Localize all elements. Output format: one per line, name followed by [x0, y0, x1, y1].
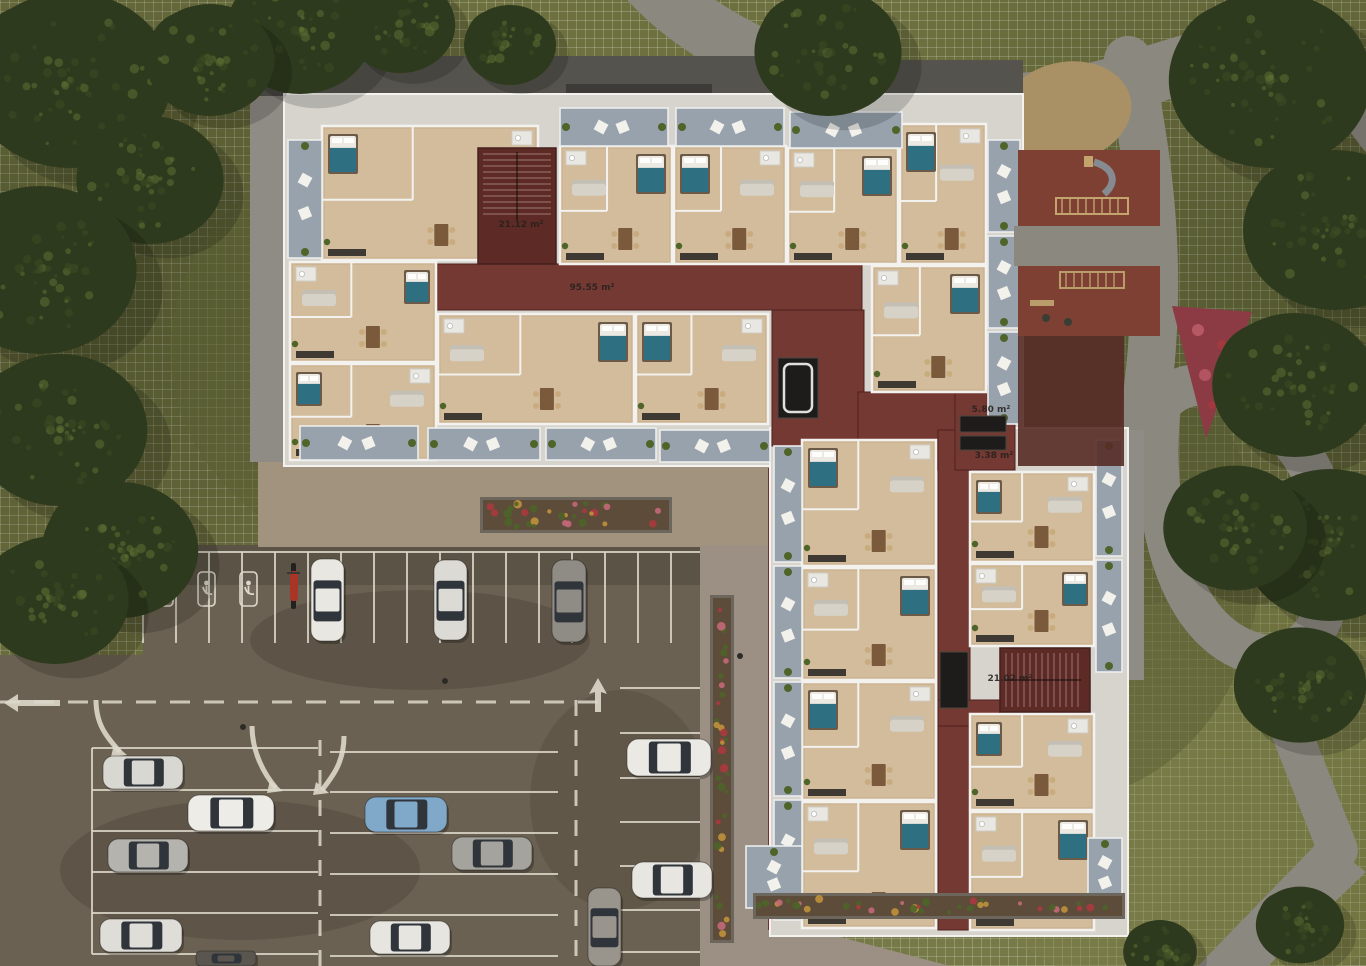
balcony [288, 140, 322, 258]
plant [804, 779, 810, 785]
balcony-plant [658, 123, 666, 131]
car [370, 921, 452, 957]
balcony [300, 426, 418, 460]
flower-strip [753, 893, 1125, 919]
balcony-plant [784, 552, 792, 560]
elevator-shaft [960, 416, 1006, 432]
bed [598, 322, 628, 362]
elevator-shaft [940, 652, 968, 708]
sofa [884, 302, 918, 318]
sofa [940, 165, 974, 181]
apartment-unit[interactable] [802, 440, 936, 566]
bed [1062, 572, 1088, 606]
bed [1058, 820, 1088, 860]
elevator-shaft [960, 436, 1006, 450]
bathroom [960, 129, 980, 143]
apartment-unit[interactable] [970, 564, 1094, 646]
balcony-plant [784, 448, 792, 456]
spring-rider [1042, 314, 1050, 322]
car [627, 739, 713, 779]
plant [902, 243, 908, 249]
plant [972, 789, 978, 795]
balcony-plant [301, 248, 309, 256]
balcony-plant [1105, 546, 1113, 554]
balcony-plant [302, 439, 310, 447]
balcony-plant [784, 802, 792, 810]
apartment-unit[interactable] [970, 714, 1094, 810]
balcony [988, 140, 1020, 232]
bathroom [444, 319, 464, 333]
bathroom [976, 569, 996, 583]
car [365, 797, 449, 835]
bed [680, 154, 710, 194]
apartment-unit[interactable] [802, 682, 936, 800]
car [188, 795, 276, 834]
bathroom [794, 153, 814, 167]
kitchen-counter [794, 253, 832, 260]
bollard [737, 653, 743, 659]
bed [862, 156, 892, 196]
balcony [774, 566, 802, 678]
balcony-plant [430, 440, 438, 448]
plant [292, 341, 298, 347]
apartment-unit[interactable] [636, 314, 768, 424]
plant [676, 243, 682, 249]
apartment-unit[interactable] [802, 568, 936, 680]
bathroom [910, 445, 930, 459]
balcony [774, 682, 802, 796]
balcony [774, 446, 802, 562]
kitchen-counter [808, 789, 846, 796]
bed [808, 690, 838, 730]
car [100, 919, 184, 955]
bed [976, 722, 1002, 756]
bed [950, 274, 980, 314]
balcony-plant [1101, 840, 1109, 848]
area-label: 3.38 m² [975, 451, 1014, 461]
car [632, 862, 714, 901]
kitchen-counter [444, 413, 482, 420]
kitchen-counter [976, 635, 1014, 642]
sofa [890, 476, 924, 492]
balcony-plant [1000, 222, 1008, 230]
kitchen-counter [976, 919, 1014, 926]
balcony-plant [774, 123, 782, 131]
balcony-plant [662, 442, 670, 450]
balcony [660, 430, 770, 462]
balcony-plant [562, 123, 570, 131]
plant [804, 659, 810, 665]
bathroom [512, 131, 532, 145]
bathroom [566, 151, 586, 165]
bed [296, 372, 322, 406]
apartment-unit[interactable] [560, 146, 672, 264]
balcony-plant [784, 568, 792, 576]
plant [972, 625, 978, 631]
sofa [302, 290, 336, 306]
apartment-unit[interactable] [674, 146, 786, 264]
kitchen-counter [328, 249, 366, 256]
courtyard-zone [1014, 226, 1170, 266]
bathroom [296, 267, 316, 281]
bed [976, 480, 1002, 514]
bollard [240, 724, 246, 730]
balcony-plant [548, 440, 556, 448]
balcony-plant [408, 439, 416, 447]
plant [804, 545, 810, 551]
sofa [390, 391, 424, 407]
plant [790, 243, 796, 249]
car [311, 559, 346, 644]
car [103, 756, 185, 792]
balcony-plant [1000, 142, 1008, 150]
sofa [1048, 741, 1082, 757]
courtyard-zone [1018, 336, 1124, 466]
kitchen-counter [566, 253, 604, 260]
car [588, 888, 623, 966]
bathroom [410, 369, 430, 383]
apartment-unit[interactable] [872, 266, 986, 392]
balcony-plant [892, 126, 900, 134]
bathroom [878, 271, 898, 285]
plant [440, 403, 446, 409]
sofa [450, 345, 484, 361]
bed [642, 322, 672, 362]
bathroom [910, 687, 930, 701]
apartment-unit[interactable] [290, 262, 436, 362]
area-label: 21.12 m² [499, 220, 544, 230]
area-label: 95.55 m² [570, 283, 615, 293]
bed [906, 132, 936, 172]
area-label: 5.80 m² [972, 405, 1011, 415]
sofa [1048, 497, 1082, 513]
sofa [982, 846, 1016, 862]
car [434, 560, 469, 643]
balcony [560, 108, 668, 146]
car [452, 837, 534, 873]
bathroom [976, 817, 996, 831]
balcony [676, 108, 784, 146]
balcony-plant [530, 440, 538, 448]
plant [874, 371, 880, 377]
sofa [572, 180, 606, 196]
balcony [1096, 560, 1122, 672]
sofa [982, 586, 1016, 602]
balcony-plant [784, 668, 792, 676]
bed [808, 448, 838, 488]
kitchen-counter [808, 669, 846, 676]
bench [1030, 300, 1054, 306]
apartment-unit[interactable] [438, 314, 634, 424]
planter-box [480, 497, 672, 533]
concrete-apron [250, 96, 286, 462]
accessible-parking-icon [240, 572, 257, 606]
site-plan-render: 95.55 m²21.12 m²5.80 m²3.38 m²21.02 m² [0, 0, 1366, 966]
kitchen-counter [642, 413, 680, 420]
bathroom [808, 807, 828, 821]
car [552, 560, 588, 645]
spring-rider [1064, 318, 1072, 326]
balcony [428, 428, 540, 460]
bathroom [1068, 477, 1088, 491]
sofa [814, 838, 848, 854]
bathroom [808, 573, 828, 587]
kitchen-counter [976, 551, 1014, 558]
plant [972, 541, 978, 547]
balcony-plant [770, 848, 778, 856]
kitchen-counter [878, 381, 916, 388]
bed [404, 270, 430, 304]
balcony-plant [301, 142, 309, 150]
apartment-unit[interactable] [970, 472, 1094, 562]
plant [292, 439, 298, 445]
kitchen-counter [680, 253, 718, 260]
bed [328, 134, 358, 174]
balcony-plant [646, 440, 654, 448]
sofa [890, 716, 924, 732]
apartment-unit[interactable] [788, 148, 898, 264]
balcony-plant [1000, 318, 1008, 326]
sofa [800, 181, 834, 197]
balcony-plant [784, 684, 792, 692]
car [108, 839, 190, 875]
apartment-unit[interactable] [900, 124, 986, 264]
bed [636, 154, 666, 194]
bathroom [760, 151, 780, 165]
plant [638, 403, 644, 409]
corridor [436, 264, 862, 310]
bathroom [1068, 719, 1088, 733]
balcony-plant [760, 442, 768, 450]
balcony [546, 428, 656, 460]
kitchen-counter [808, 555, 846, 562]
bollard [442, 678, 448, 684]
balcony-plant [1105, 662, 1113, 670]
sofa [722, 345, 756, 361]
balcony-plant [678, 123, 686, 131]
bed [900, 576, 930, 616]
slide-ladder [1084, 156, 1093, 167]
stairwell [478, 148, 556, 264]
kitchen-counter [976, 799, 1014, 806]
bathroom [742, 319, 762, 333]
kitchen-counter [906, 253, 944, 260]
car [196, 951, 258, 966]
balcony-plant [784, 786, 792, 794]
plant [562, 243, 568, 249]
balcony-plant [1000, 238, 1008, 246]
sofa [814, 600, 848, 616]
area-label: 21.02 m² [988, 674, 1033, 684]
balcony-plant [1105, 562, 1113, 570]
bed [900, 810, 930, 850]
sofa [740, 180, 774, 196]
kitchen-counter [296, 351, 334, 358]
balcony-plant [792, 126, 800, 134]
balcony-plant [1000, 334, 1008, 342]
plant [324, 239, 330, 245]
